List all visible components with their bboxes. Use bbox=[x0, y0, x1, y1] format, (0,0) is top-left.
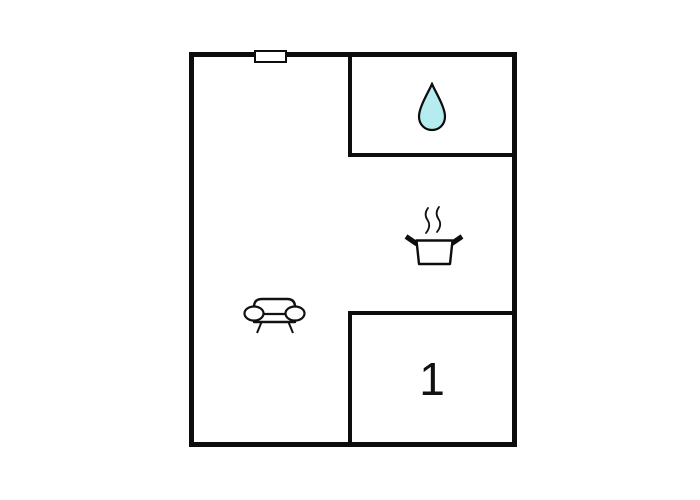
sofa-armrest-right bbox=[286, 307, 305, 321]
cooking-pot-icon bbox=[403, 202, 465, 266]
steam-line-right bbox=[437, 207, 441, 232]
sofa-icon bbox=[240, 290, 308, 338]
bathroom-wall-vertical bbox=[348, 57, 352, 157]
window-marker bbox=[254, 50, 287, 63]
floor-plan-canvas: 1 bbox=[0, 0, 700, 500]
sofa-armrest-left bbox=[245, 307, 264, 321]
bathroom-wall-horizontal bbox=[348, 153, 512, 157]
water-drop-icon bbox=[417, 82, 447, 132]
steam-line-left bbox=[426, 208, 430, 233]
water-drop-shape bbox=[419, 84, 445, 130]
pot-body bbox=[417, 241, 453, 265]
bedroom-number: 1 bbox=[352, 315, 512, 442]
